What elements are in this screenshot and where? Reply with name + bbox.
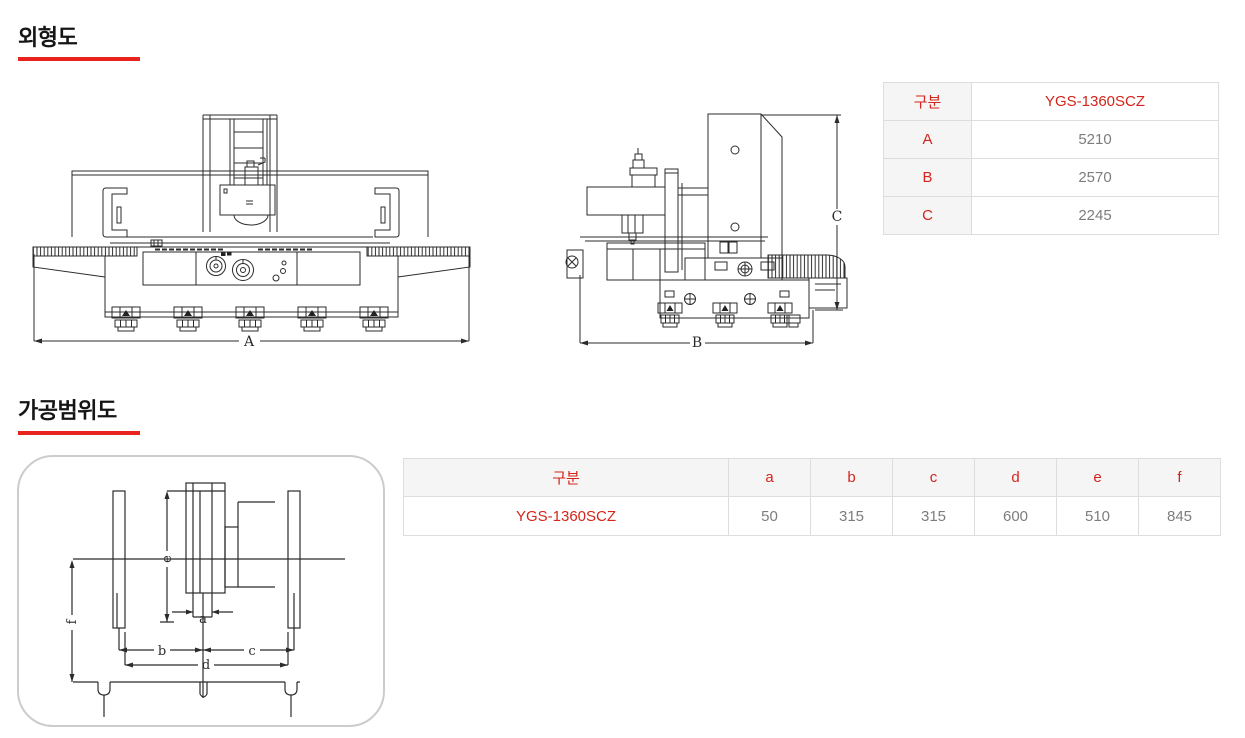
saddle-body bbox=[143, 252, 360, 285]
table-row: 구분 YGS-1360SCZ bbox=[884, 83, 1219, 121]
range-header-cell: d bbox=[975, 459, 1057, 497]
dimension-a-line bbox=[34, 254, 469, 344]
range-header-cell: a bbox=[729, 459, 811, 497]
table-row: A 5210 bbox=[884, 121, 1219, 159]
range-label-b: b bbox=[158, 644, 166, 659]
range-header-cell: c bbox=[893, 459, 975, 497]
side-dim-b-label: B bbox=[692, 335, 702, 351]
side-view-drawing: B C bbox=[565, 88, 855, 354]
range-label-c: c bbox=[248, 644, 255, 659]
column bbox=[203, 115, 277, 232]
range-heading-underline bbox=[18, 431, 140, 435]
range-value-cell: 845 bbox=[1139, 497, 1221, 536]
range-diagram-drawing: a b c d e f bbox=[19, 457, 383, 725]
machine-base bbox=[33, 256, 470, 317]
table-row: YGS-1360SCZ 50 315 315 600 510 845 bbox=[404, 497, 1221, 536]
dim-value: 2570 bbox=[972, 159, 1219, 197]
range-dimension-table: 구분 a b c d e f YGS-1360SCZ 50 315 315 60… bbox=[403, 458, 1221, 536]
side-guards bbox=[103, 188, 399, 237]
table-row: 구분 a b c d e f bbox=[404, 459, 1221, 497]
spec-page: { "colors": { "underline_red": "#e8231d"… bbox=[0, 0, 1245, 738]
spindle-head-side bbox=[587, 148, 665, 244]
table-profile bbox=[73, 682, 300, 717]
range-header-cell: b bbox=[811, 459, 893, 497]
range-header-cell: 구분 bbox=[404, 459, 729, 497]
column-side bbox=[708, 114, 782, 258]
outline-table-key-header: 구분 bbox=[884, 83, 972, 121]
range-value-cell: 510 bbox=[1057, 497, 1139, 536]
range-diagram-box: a b c d e f bbox=[17, 455, 385, 727]
bellows-cover bbox=[768, 255, 847, 308]
dim-value: 2245 bbox=[972, 197, 1219, 235]
range-header-cell: f bbox=[1139, 459, 1221, 497]
work-table bbox=[33, 237, 470, 256]
outline-dimension-table: 구분 YGS-1360SCZ A 5210 B 2570 C 2245 bbox=[883, 82, 1219, 235]
range-value-cell: 315 bbox=[811, 497, 893, 536]
table-row: B 2570 bbox=[884, 159, 1219, 197]
range-section-heading: 가공범위도 bbox=[18, 393, 117, 425]
dim-label: B bbox=[884, 159, 972, 197]
side-dim-c-label: C bbox=[832, 209, 843, 225]
range-header-cell: e bbox=[1057, 459, 1139, 497]
range-label-a: a bbox=[199, 612, 207, 627]
table-row: C 2245 bbox=[884, 197, 1219, 235]
range-model-cell: YGS-1360SCZ bbox=[404, 497, 729, 536]
range-label-e: e bbox=[160, 555, 175, 563]
dim-label: A bbox=[884, 121, 972, 159]
range-label-f: f bbox=[65, 618, 80, 624]
range-value-cell: 50 bbox=[729, 497, 811, 536]
dim-label: C bbox=[884, 197, 972, 235]
range-value-cell: 600 bbox=[975, 497, 1057, 536]
outline-section-heading: 외형도 bbox=[18, 20, 77, 52]
outline-table-model-header: YGS-1360SCZ bbox=[972, 83, 1219, 121]
dimension-b-c-lines bbox=[119, 628, 294, 653]
range-label-d: d bbox=[202, 658, 210, 673]
outline-heading-underline bbox=[18, 57, 140, 61]
front-view-drawing: A bbox=[28, 88, 490, 354]
front-dim-label: A bbox=[243, 334, 255, 350]
carriage bbox=[685, 258, 782, 280]
vertical-slide bbox=[665, 169, 708, 272]
dim-value: 5210 bbox=[972, 121, 1219, 159]
wheel-group bbox=[167, 483, 275, 698]
range-value-cell: 315 bbox=[893, 497, 975, 536]
